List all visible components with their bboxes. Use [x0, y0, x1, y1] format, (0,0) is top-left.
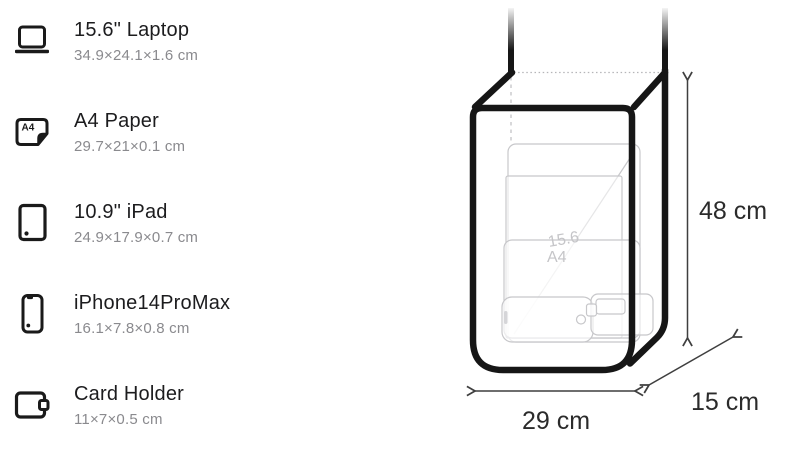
reference-item-list: 15.6" Laptop 34.9×24.1×1.6 cm A4 A4 Pape…	[10, 12, 310, 467]
width-dimension-label: 29 cm	[522, 407, 590, 435]
laptop-icon	[10, 25, 54, 57]
item-text: 10.9" iPad 24.9×17.9×0.7 cm	[74, 200, 198, 246]
item-name: Card Holder	[74, 382, 184, 407]
ghost-label-a4: A4	[547, 249, 567, 266]
item-text: Card Holder 11×7×0.5 cm	[74, 382, 184, 428]
depth-arrow	[649, 337, 733, 385]
size-comparison-panel: 15.6" Laptop 34.9×24.1×1.6 cm A4 A4 Pape…	[0, 0, 800, 455]
card-holder-icon	[10, 390, 54, 420]
list-item-iphone: iPhone14ProMax 16.1×7.8×0.8 cm	[10, 285, 310, 343]
item-text: 15.6" Laptop 34.9×24.1×1.6 cm	[74, 18, 198, 64]
item-dimensions: 29.7×21×0.1 cm	[74, 138, 185, 155]
item-dimensions: 34.9×24.1×1.6 cm	[74, 47, 198, 64]
a4-paper-icon: A4	[10, 117, 54, 147]
height-dimension-label: 48 cm	[699, 197, 767, 225]
list-item-ipad: 10.9" iPad 24.9×17.9×0.7 cm	[10, 194, 310, 252]
item-name: A4 Paper	[74, 109, 185, 134]
iphone-icon	[10, 293, 54, 335]
depth-dimension-label: 15 cm	[691, 388, 759, 416]
item-name: 10.9" iPad	[74, 200, 198, 225]
list-item-laptop: 15.6" Laptop 34.9×24.1×1.6 cm	[10, 12, 310, 70]
item-name: 15.6" Laptop	[74, 18, 198, 43]
item-dimensions: 24.9×17.9×0.7 cm	[74, 229, 198, 246]
ghost-iphone	[502, 297, 593, 342]
bag-dimension-diagram: 15.6 A4 48 cm 15 cm 29 cm	[440, 0, 800, 455]
ghost-card-holder	[587, 294, 654, 335]
item-dimensions: 16.1×7.8×0.8 cm	[74, 320, 230, 337]
item-text: iPhone14ProMax 16.1×7.8×0.8 cm	[74, 291, 230, 337]
ipad-icon	[10, 203, 54, 243]
list-item-card-holder: Card Holder 11×7×0.5 cm	[10, 376, 310, 434]
item-text: A4 Paper 29.7×21×0.1 cm	[74, 109, 185, 155]
item-name: iPhone14ProMax	[74, 291, 230, 316]
a4-icon-text: A4	[22, 123, 35, 134]
bag-straps	[511, 8, 665, 73]
list-item-a4-paper: A4 A4 Paper 29.7×21×0.1 cm	[10, 103, 310, 161]
item-dimensions: 11×7×0.5 cm	[74, 411, 184, 428]
